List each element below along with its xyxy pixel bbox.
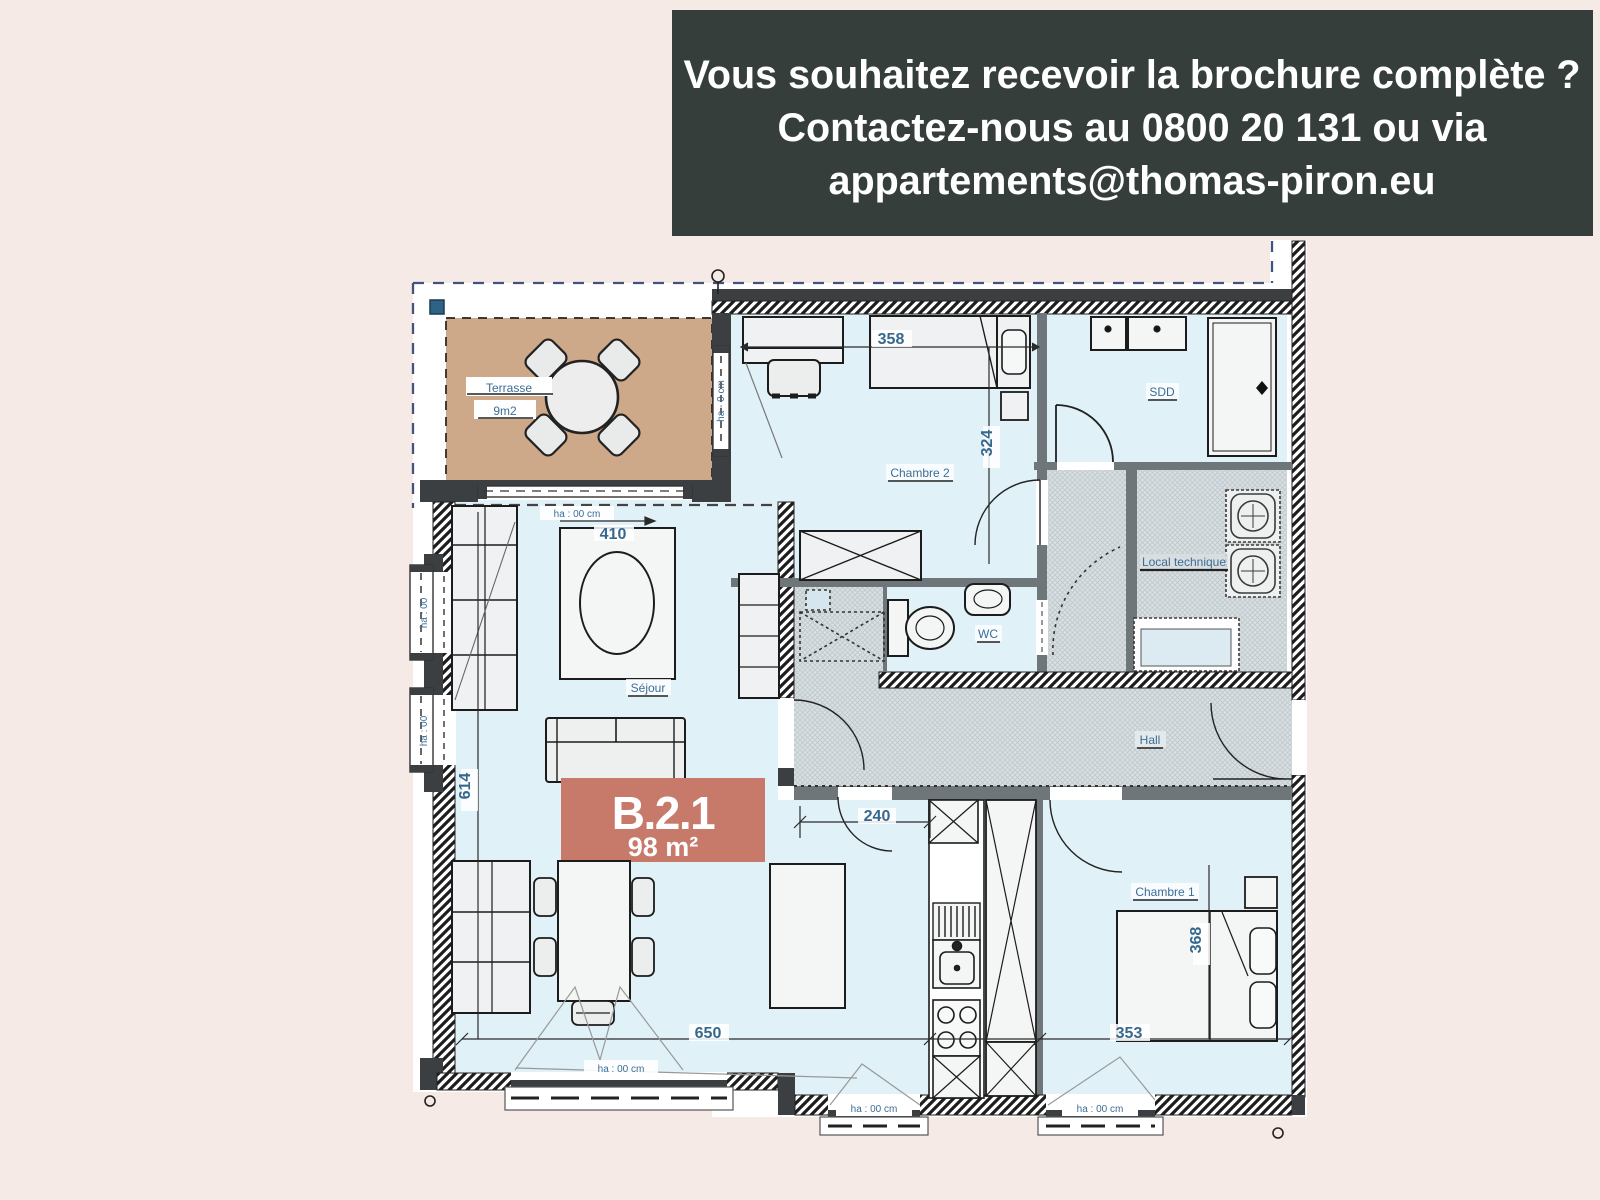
svg-text:614: 614 xyxy=(457,773,474,800)
svg-text:368: 368 xyxy=(1188,927,1205,954)
svg-text:appartements@thomas-piron.eu: appartements@thomas-piron.eu xyxy=(829,159,1436,203)
svg-text:ha : 00 cm: ha : 00 cm xyxy=(1077,1104,1124,1115)
svg-text:410: 410 xyxy=(600,526,627,543)
svg-text:650: 650 xyxy=(695,1025,722,1042)
svg-text:ha : 00 cm: ha : 00 cm xyxy=(851,1104,898,1115)
svg-text:ha : 00 cm: ha : 00 cm xyxy=(554,509,601,520)
svg-text:WC: WC xyxy=(978,627,998,641)
svg-text:9m2: 9m2 xyxy=(493,404,517,418)
svg-text:Hall: Hall xyxy=(1140,733,1161,747)
svg-text:240: 240 xyxy=(864,808,891,825)
svg-text:Chambre 2: Chambre 2 xyxy=(890,466,950,480)
svg-text:Local technique: Local technique xyxy=(1142,555,1226,569)
svg-text:ha : 00 cm: ha : 00 cm xyxy=(598,1064,645,1075)
svg-text:Contactez-nous au 0800 20 131: Contactez-nous au 0800 20 131 ou via xyxy=(777,106,1487,150)
svg-text:353: 353 xyxy=(1116,1025,1143,1042)
svg-text:ha : 00: ha : 00 xyxy=(419,597,430,628)
svg-text:SDD: SDD xyxy=(1149,385,1175,399)
svg-text:ha : 00: ha : 00 xyxy=(419,715,430,746)
svg-text:358: 358 xyxy=(878,331,905,348)
svg-text:98 m²: 98 m² xyxy=(628,832,699,862)
svg-text:ha - 0 cm: ha - 0 cm xyxy=(716,380,727,422)
svg-text:Séjour: Séjour xyxy=(631,681,666,695)
svg-text:Vous souhaitez recevoir la bro: Vous souhaitez recevoir la brochure comp… xyxy=(683,53,1580,97)
svg-text:Terrasse: Terrasse xyxy=(486,381,532,395)
svg-text:Chambre 1: Chambre 1 xyxy=(1135,885,1195,899)
svg-text:324: 324 xyxy=(979,430,996,457)
